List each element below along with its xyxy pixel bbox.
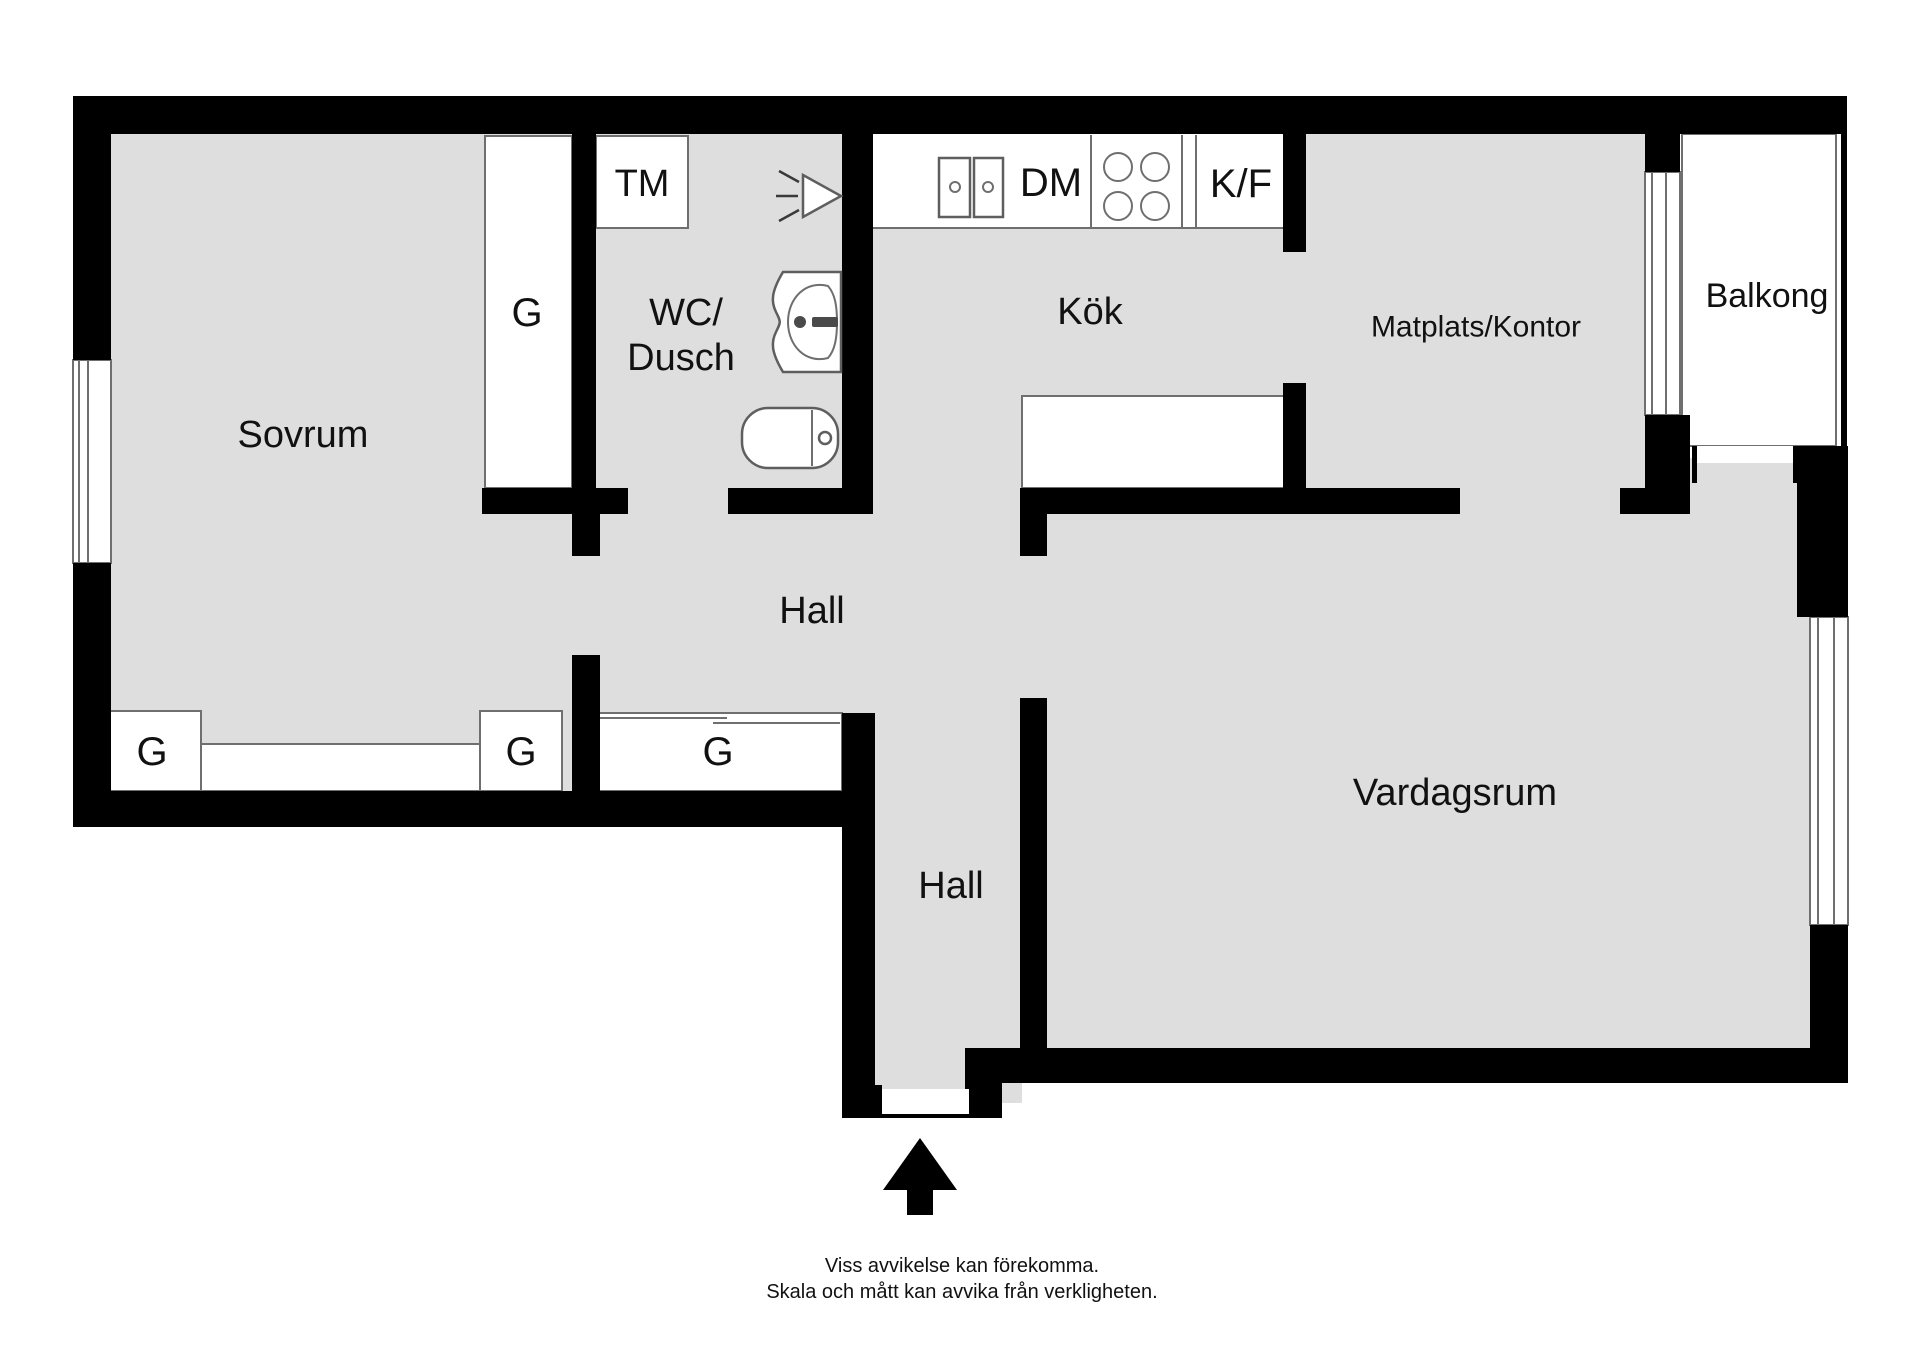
- entrance-door-jamb: [969, 1085, 973, 1118]
- balcony-door-threshold: [1697, 446, 1793, 463]
- wall-exterior-left-lower: [73, 563, 111, 795]
- wall-kok-matplats-upper: [1283, 134, 1306, 252]
- wall-corridor-left: [842, 713, 875, 1118]
- balcony-door-jamb: [1793, 446, 1798, 483]
- wall-exterior-right-lower: [1810, 925, 1848, 1083]
- closet-label-hall: G: [702, 730, 733, 774]
- floor-plan-page: Sovrum G TM WC/ Dusch Kök DM K/F Matplat…: [0, 0, 1920, 1357]
- floor-doorway-kok-matplats: [1280, 250, 1310, 385]
- wall-wc-kok: [842, 134, 873, 514]
- closet-label-left: G: [136, 730, 167, 774]
- floors: [103, 130, 1812, 1103]
- toilet-icon: [742, 408, 838, 468]
- appliance-label-kf: K/F: [1210, 162, 1272, 206]
- entrance-arrow-icon: [883, 1138, 957, 1215]
- sink-icon: [773, 272, 841, 372]
- wall-sovrum-hall-lower: [572, 655, 600, 795]
- floor-plan-svg: Sovrum G TM WC/ Dusch Kök DM K/F Matplat…: [0, 0, 1920, 1357]
- footer-disclaimer-line2: Skala och mått kan avvika från verklighe…: [766, 1281, 1157, 1303]
- dishwasher-icon: [939, 158, 1003, 217]
- wall-balcony-divider-bottom: [1645, 415, 1690, 488]
- closet-label-middle: G: [505, 730, 536, 774]
- room-label-sovrum: Sovrum: [238, 414, 369, 456]
- wall-exterior-vardagsrum-bottom: [965, 1048, 1848, 1083]
- room-label-balkong: Balkong: [1706, 277, 1829, 315]
- wall-sovrum-door-stub: [572, 514, 600, 556]
- room-label-vardagsrum: Vardagsrum: [1353, 772, 1557, 814]
- window-vardagsrum: [1810, 617, 1848, 925]
- balcony-railing-line: [1841, 96, 1847, 447]
- wall-sovrum-wc: [572, 134, 596, 488]
- appliance-label-tm: TM: [615, 163, 670, 205]
- wall-closet-cap: [482, 488, 628, 514]
- balcony-door-jamb: [1692, 446, 1697, 483]
- window-matplats-balkong: [1645, 172, 1680, 415]
- room-label-matplats: Matplats/Kontor: [1371, 311, 1581, 344]
- room-label-hall-lower: Hall: [918, 865, 983, 907]
- low-cabinet-strip: [201, 744, 480, 791]
- wall-exterior-left-upper: [73, 96, 111, 360]
- room-label-hall-upper: Hall: [779, 590, 844, 632]
- closet-label-tall: G: [511, 291, 542, 335]
- wall-kok-vardagsrum-bottom: [1020, 488, 1460, 514]
- room-label-wc-line2: Dusch: [627, 337, 735, 379]
- wall-corridor-right: [1020, 698, 1047, 1083]
- wall-balcony-divider-foot: [1620, 488, 1690, 514]
- entrance-door-threshold: [881, 1089, 971, 1114]
- wall-wc-bottom: [728, 488, 873, 514]
- entrance-door-jamb: [878, 1085, 882, 1118]
- footer-disclaimer-line1: Viss avvikelse kan förekomma.: [825, 1255, 1099, 1277]
- kitchen-peninsula: [1022, 396, 1284, 488]
- appliance-label-dm: DM: [1020, 161, 1082, 205]
- room-label-kok: Kök: [1057, 291, 1123, 333]
- wall-corridor-right-stub: [1020, 514, 1047, 556]
- wall-exterior-right-upper: [1797, 446, 1848, 617]
- wall-corridor-bottom-left: [842, 1085, 881, 1118]
- wall-balcony-divider-top: [1645, 134, 1680, 172]
- wall-exterior-top: [73, 96, 1845, 134]
- room-label-wc-line1: WC/: [649, 292, 723, 334]
- wall-exterior-sovrum-bottom: [73, 791, 875, 827]
- entrance-door-sill-line: [881, 1114, 971, 1118]
